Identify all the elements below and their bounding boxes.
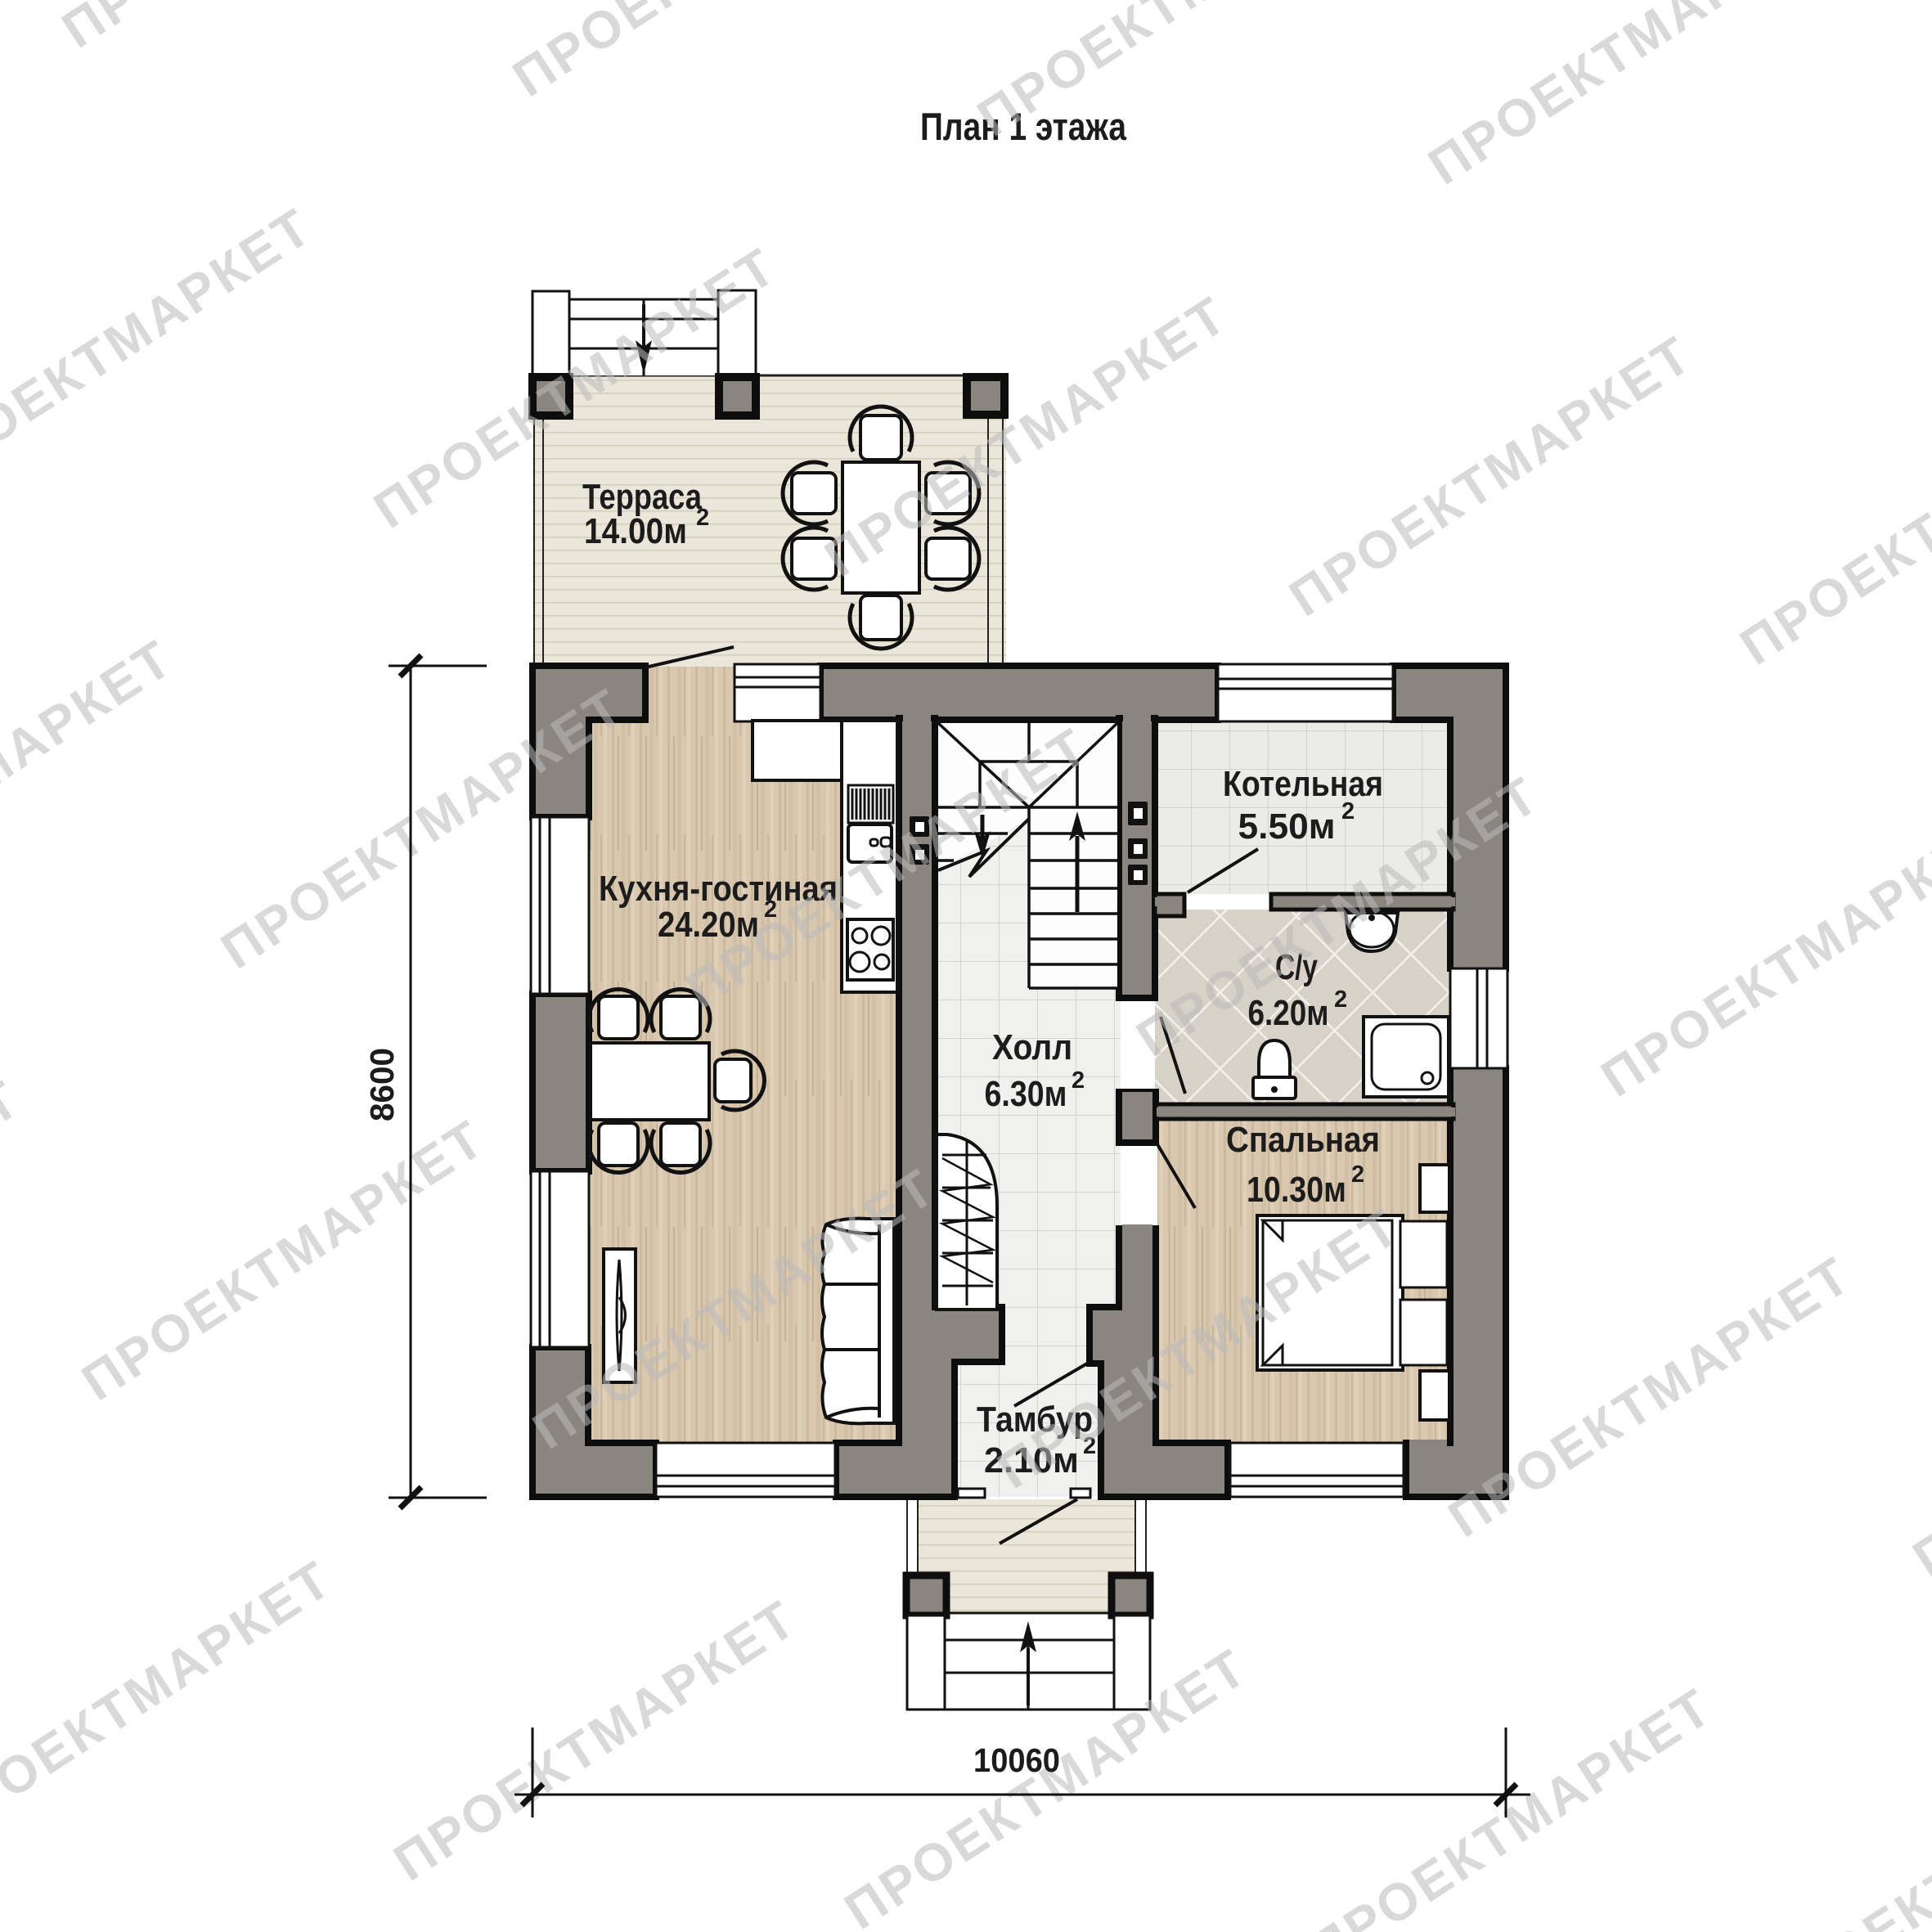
svg-text:2: 2 (696, 505, 709, 531)
svg-text:10.30м: 10.30м (1247, 1170, 1346, 1210)
svg-text:2: 2 (1072, 1067, 1085, 1094)
svg-text:Спальная: Спальная (1226, 1120, 1380, 1160)
svg-text:2: 2 (1351, 1161, 1364, 1188)
svg-text:14.00м: 14.00м (584, 511, 687, 551)
svg-text:2: 2 (1334, 986, 1347, 1013)
svg-text:6.30м: 6.30м (985, 1074, 1067, 1114)
svg-text:8600: 8600 (363, 1048, 401, 1121)
svg-text:Холл: Холл (992, 1027, 1072, 1067)
svg-text:2: 2 (1341, 798, 1355, 824)
svg-text:5.50м: 5.50м (1238, 806, 1336, 847)
svg-text:Котельная: Котельная (1223, 764, 1383, 804)
svg-text:10060: 10060 (973, 1741, 1060, 1779)
